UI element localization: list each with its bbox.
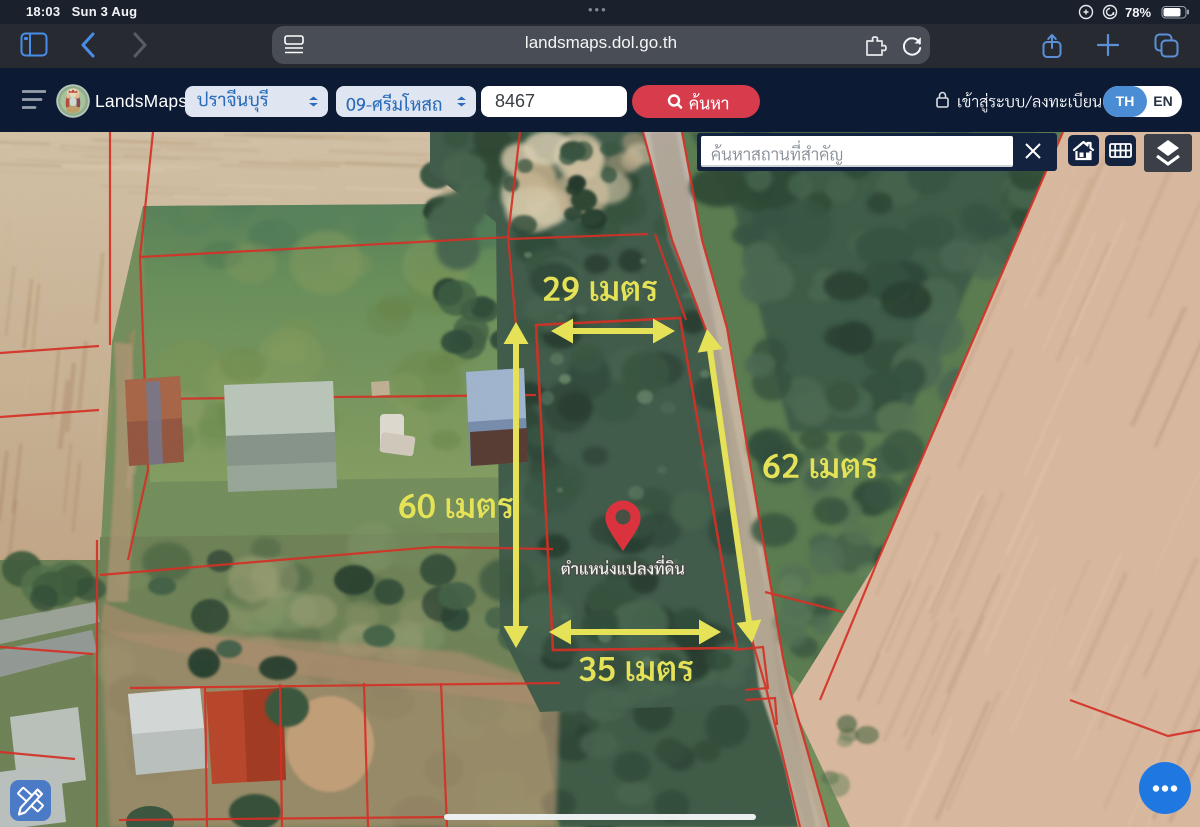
svg-text:78%: 78% [1125, 5, 1151, 20]
